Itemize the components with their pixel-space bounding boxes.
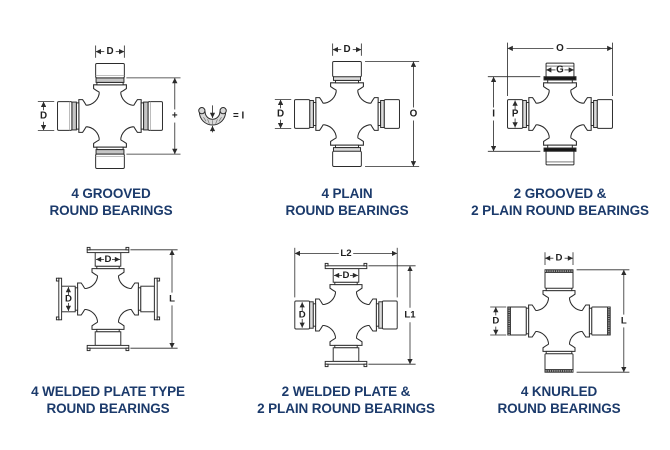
dim-label-L: L	[169, 294, 175, 305]
caption-line: 4 KNURLED	[448, 384, 670, 401]
caption-four-plain: 4 PLAIN ROUND BEARINGS	[236, 186, 458, 219]
caption-line: 2 GROOVED &	[449, 186, 670, 203]
diagram-four-grooved: D D + = I	[38, 45, 245, 168]
dim-label-G: G	[556, 64, 564, 75]
dim-label-left-D: D	[65, 294, 72, 305]
bearing-right-plain	[584, 98, 613, 131]
dim-label-top-D: D	[105, 254, 112, 265]
dim-label-top-D: D	[343, 44, 350, 55]
dim-label-L1: L1	[404, 310, 416, 321]
bearing-top	[543, 270, 575, 298]
caption-line: 4 WELDED PLATE TYPE	[0, 384, 219, 401]
dim-label-left-D: D	[299, 310, 306, 321]
bearing-bottom	[331, 138, 364, 167]
dim-label-top-D: D	[343, 270, 350, 281]
bearing-right-plain	[369, 299, 397, 331]
dim-label-plus: +	[172, 111, 178, 122]
dim-label-left-D: D	[40, 111, 47, 122]
diagram-four-plain: D D O	[275, 43, 419, 166]
bearing-bottom	[543, 344, 575, 372]
dim-label-top-D: D	[556, 253, 563, 264]
bearing-bottom	[87, 322, 129, 350]
cross-body	[78, 269, 139, 330]
caption-two-welded-two-plain: 2 WELDED PLATE & 2 PLAIN ROUND BEARINGS	[235, 384, 457, 417]
caption-line: 2 PLAIN ROUND BEARINGS	[449, 203, 670, 220]
caption-line: ROUND BEARINGS	[448, 401, 670, 418]
dim-label-top-D: D	[106, 46, 113, 57]
bearing-top	[94, 64, 127, 93]
dim-label-P: P	[512, 109, 519, 120]
caption-four-grooved: 4 GROOVED ROUND BEARINGS	[0, 186, 222, 219]
dim-label-equals-I: = I	[233, 111, 244, 122]
caption-four-welded-plate: 4 WELDED PLATE TYPE ROUND BEARINGS	[0, 384, 219, 417]
caption-line: ROUND BEARINGS	[236, 203, 458, 220]
caption-two-grooved-two-plain: 2 GROOVED & 2 PLAIN ROUND BEARINGS	[449, 186, 670, 219]
bearing-top	[331, 62, 364, 91]
dim-label-L: L	[621, 316, 627, 327]
dim-label-left-D: D	[277, 109, 284, 120]
caption-line: 4 GROOVED	[0, 186, 222, 203]
dim-label-O: O	[410, 109, 418, 120]
caption-line: 4 PLAIN	[236, 186, 458, 203]
bearing-right	[134, 100, 163, 133]
dim-label-O: O	[556, 43, 564, 54]
diagram-four-welded-plate: D D L	[56, 247, 177, 350]
dim-label-left-D: D	[492, 316, 499, 327]
diagram-canvas: D D + = I	[0, 0, 670, 450]
bearing-bottom-grooved	[544, 138, 577, 165]
bearing-bottom	[94, 140, 127, 169]
cross-body	[529, 83, 591, 145]
bearing-right	[582, 305, 610, 337]
bearing-left	[508, 305, 536, 337]
diagram-four-knurled: D D L	[490, 252, 629, 372]
ujoint-reference-sheet: D D + = I	[0, 0, 670, 450]
dim-label-I: I	[492, 109, 495, 120]
caption-line: ROUND BEARINGS	[0, 401, 219, 418]
caption-line: ROUND BEARINGS	[0, 203, 222, 220]
caption-line: 2 PLAIN ROUND BEARINGS	[235, 401, 457, 418]
dim-label-L2: L2	[340, 248, 351, 259]
caption-four-knurled: 4 KNURLED ROUND BEARINGS	[448, 384, 670, 417]
bearing-right	[131, 278, 159, 320]
caption-line: 2 WELDED PLATE &	[235, 384, 457, 401]
bearing-right	[371, 98, 400, 131]
bearing-bottom-welded	[325, 338, 367, 366]
cross-body	[529, 291, 590, 352]
bearing-left	[295, 98, 324, 131]
cross-body	[316, 83, 378, 145]
diagram-two-welded-two-plain: L2 D D L1	[295, 248, 416, 367]
cross-body	[79, 85, 141, 147]
bearing-left	[58, 100, 87, 133]
diagram-two-grooved-two-plain: O G I P	[488, 43, 613, 165]
cross-body	[316, 285, 377, 346]
